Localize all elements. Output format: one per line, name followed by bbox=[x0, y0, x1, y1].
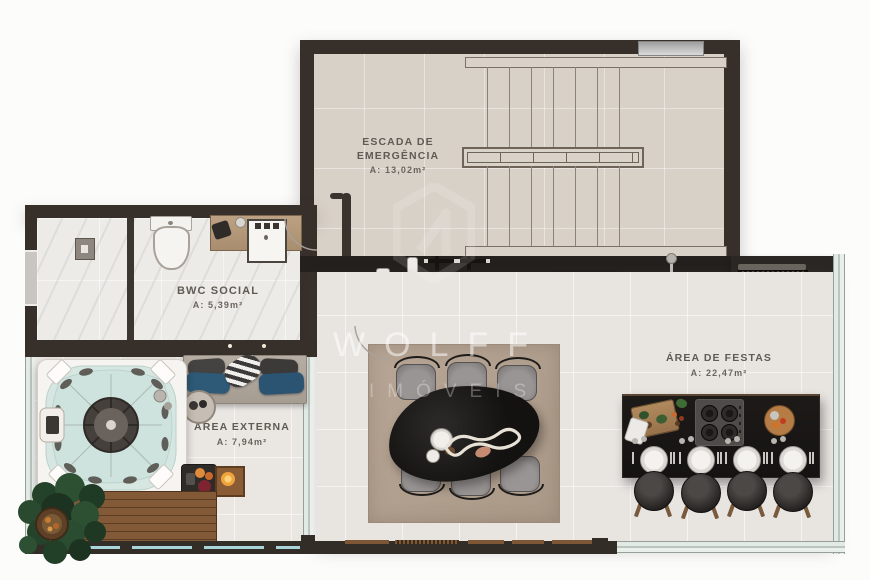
bottom-glass-segment bbox=[276, 546, 300, 549]
stair-handrail-hook-top bbox=[330, 193, 344, 199]
place-setting bbox=[677, 438, 723, 472]
toilet-flush-button bbox=[168, 221, 173, 225]
bar-tap-left-handle bbox=[435, 256, 439, 270]
island-pepper bbox=[679, 416, 684, 421]
stair-middle-rail-balusters bbox=[467, 152, 639, 163]
outdoor-label: ÁREA EXTERNA A: 7,94m² bbox=[182, 421, 302, 448]
bottom-right-glass-wall bbox=[615, 541, 845, 553]
bottom-wall-post bbox=[301, 535, 315, 545]
stair-flight-upper bbox=[466, 67, 630, 147]
party-area-label: ÁREA DE FESTAS A: 22,47m² bbox=[649, 352, 789, 379]
stair-room-name-line2: EMERGÊNCIA bbox=[328, 150, 468, 164]
stair-room-door bbox=[638, 41, 704, 56]
stair-flight-lower bbox=[466, 166, 630, 246]
vanity-soap-dish bbox=[235, 217, 246, 228]
outdoor-area: A: 7,94m² bbox=[182, 437, 302, 449]
party-area-area: A: 22,47m² bbox=[649, 368, 789, 380]
wall-light bbox=[228, 344, 232, 348]
side-table-round bbox=[182, 390, 216, 424]
bar-stool bbox=[725, 471, 767, 513]
table-bread bbox=[445, 447, 455, 455]
stair-room-area: A: 13,02m² bbox=[328, 165, 468, 177]
bench-pillow-blue bbox=[258, 372, 304, 395]
kitchen-faucet-head bbox=[666, 253, 677, 264]
island-pepper bbox=[672, 412, 677, 417]
sink-drain-dot bbox=[264, 235, 268, 240]
party-area-name: ÁREA DE FESTAS bbox=[649, 352, 789, 366]
shower-drain bbox=[75, 238, 95, 260]
shower-drain-grate bbox=[81, 245, 88, 253]
toilet-bowl bbox=[153, 226, 190, 270]
bottom-planter-wood bbox=[395, 540, 459, 544]
bottom-wall-post bbox=[592, 538, 608, 554]
bwc-right-wall bbox=[300, 205, 317, 357]
stair-room-label: ESCADA DE EMERGÊNCIA A: 13,02m² bbox=[328, 136, 468, 177]
right-glass-wall bbox=[833, 254, 845, 554]
bottom-planter-wood bbox=[512, 540, 544, 544]
bottom-planter-wood bbox=[552, 540, 592, 544]
place-setting bbox=[723, 438, 769, 472]
vanity-sink bbox=[247, 219, 287, 263]
wood-deck bbox=[73, 491, 217, 547]
floor-plan: ESCADA DE EMERGÊNCIA A: 13,02m² BWC SOCI… bbox=[0, 0, 870, 580]
bar-tap-right bbox=[456, 259, 490, 263]
stair-room-name-line1: ESCADA DE bbox=[328, 136, 468, 150]
serving-tray bbox=[764, 405, 795, 436]
fire-bowl-table bbox=[215, 466, 245, 497]
stair-middle-rail bbox=[462, 147, 644, 168]
bottom-planter-wood bbox=[345, 540, 389, 544]
sink-tap-center bbox=[264, 223, 270, 229]
bar-tap-right-handle bbox=[467, 256, 471, 270]
hot-tub bbox=[37, 359, 187, 499]
island-pepper bbox=[675, 421, 680, 426]
bar-stool bbox=[771, 472, 813, 514]
wall-light bbox=[262, 344, 266, 348]
bottom-planter-wood bbox=[468, 540, 504, 544]
bottom-glass-segment bbox=[204, 546, 264, 549]
bwc-name: BWC SOCIAL bbox=[153, 284, 283, 298]
table-cup bbox=[426, 449, 440, 463]
shower-partition bbox=[127, 218, 134, 340]
bar-stool bbox=[632, 471, 674, 513]
place-setting bbox=[769, 438, 815, 472]
bwc-window bbox=[25, 250, 37, 306]
bar-stool bbox=[679, 473, 721, 515]
sink-tap-left bbox=[255, 223, 261, 229]
outdoor-left-glass bbox=[25, 357, 35, 553]
bwc-label: BWC SOCIAL A: 5,39m² bbox=[153, 284, 283, 312]
cooktop-controls bbox=[739, 406, 741, 439]
bottom-glass-segment bbox=[60, 546, 120, 549]
sink-tap-right bbox=[273, 223, 279, 229]
bar-tap-left bbox=[424, 259, 458, 263]
place-setting bbox=[630, 438, 676, 472]
bwc-area: A: 5,39m² bbox=[153, 300, 283, 312]
bottom-glass-segment bbox=[132, 546, 192, 549]
